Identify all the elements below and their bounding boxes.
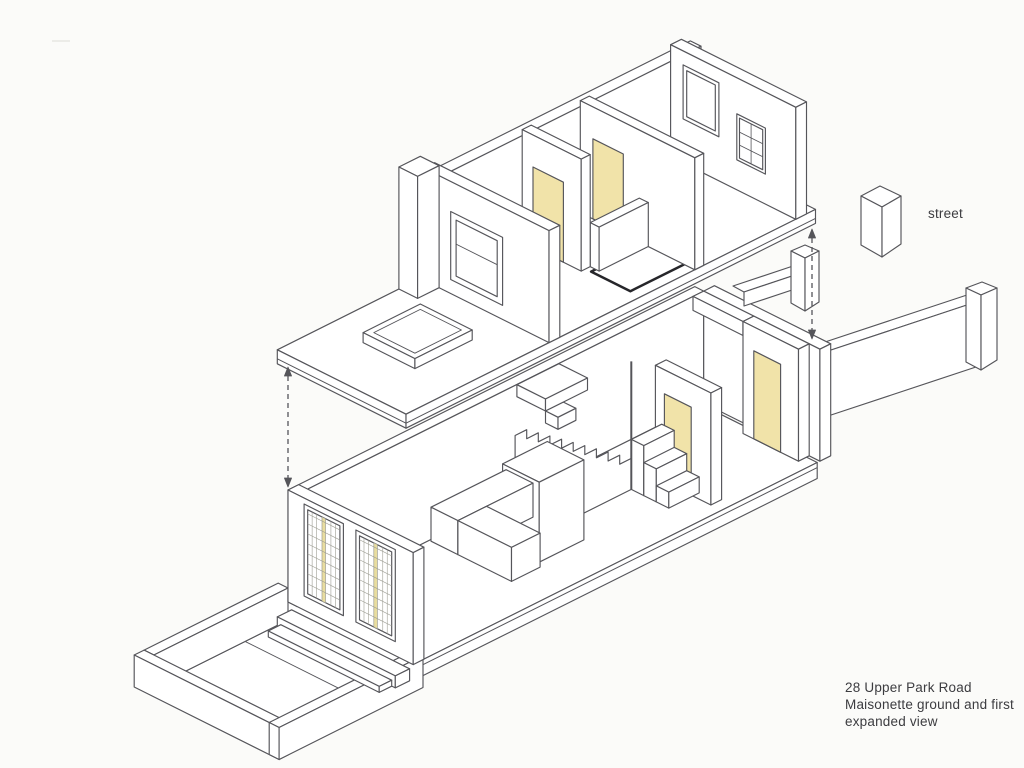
architectural-drawing-page: street 28 Upper Park Road Maisonette gro… xyxy=(0,0,1024,768)
street-label: street xyxy=(928,205,963,222)
rear-garden-wall-street xyxy=(816,186,997,416)
caption-line-viewtype: expanded view xyxy=(845,713,1014,730)
caption-line-subject: Maisonette ground and first xyxy=(845,696,1014,713)
caption-line-address: 28 Upper Park Road xyxy=(845,679,1014,696)
axonometric-drawing xyxy=(0,0,1024,768)
caption: 28 Upper Park Road Maisonette ground and… xyxy=(845,679,1014,730)
